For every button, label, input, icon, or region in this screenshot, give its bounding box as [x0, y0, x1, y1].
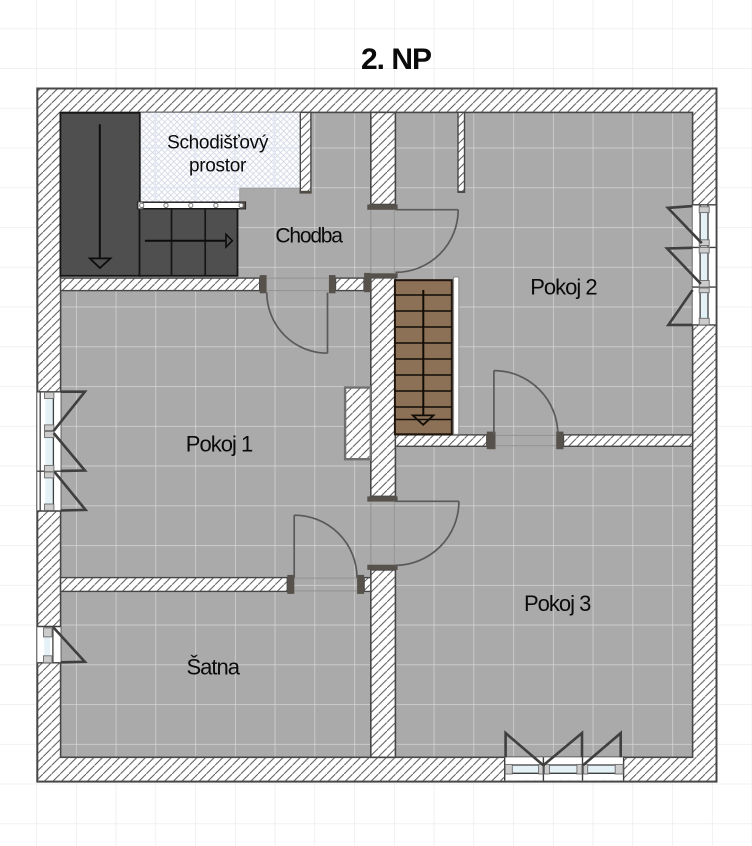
svg-text:2. NP: 2. NP: [361, 43, 431, 76]
svg-text:Pokoj 2: Pokoj 2: [530, 275, 597, 300]
svg-text:Šatna: Šatna: [186, 655, 240, 680]
svg-text:Pokoj 1: Pokoj 1: [186, 432, 253, 457]
svg-text:Schodišťový: Schodišťový: [167, 133, 269, 154]
svg-text:Pokoj 3: Pokoj 3: [524, 591, 591, 616]
svg-text:Chodba: Chodba: [275, 225, 343, 248]
svg-text:prostor: prostor: [189, 156, 247, 177]
